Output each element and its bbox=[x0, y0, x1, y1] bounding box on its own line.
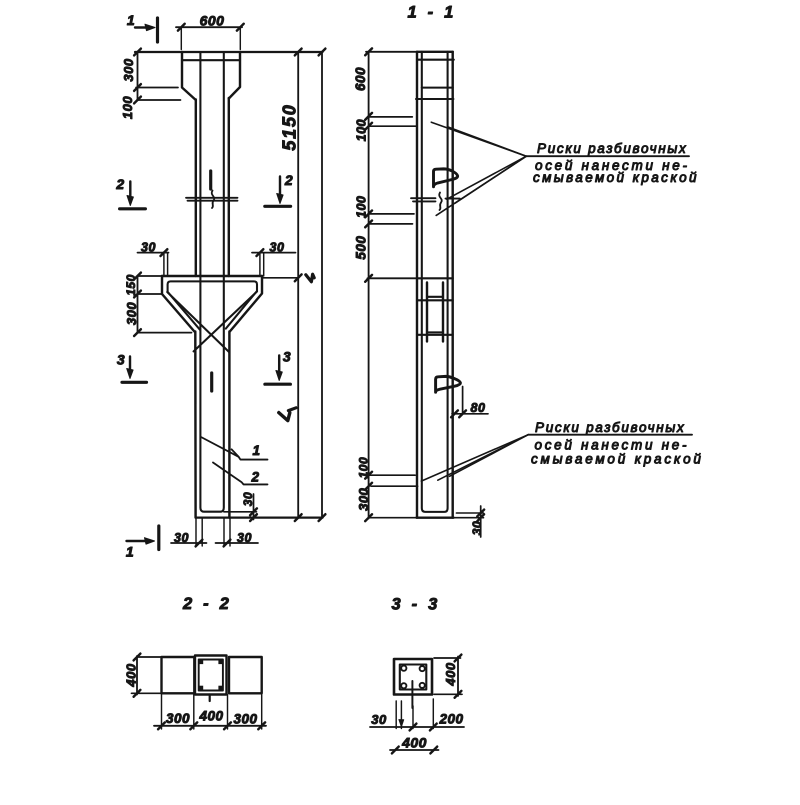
svg-text:1: 1 bbox=[252, 443, 260, 458]
svg-text:30: 30 bbox=[270, 241, 285, 255]
svg-text:400: 400 bbox=[124, 663, 139, 687]
svg-text:5150: 5150 bbox=[280, 103, 300, 150]
svg-text:2 - 2: 2 - 2 bbox=[182, 595, 232, 613]
svg-text:3: 3 bbox=[283, 349, 291, 365]
svg-text:30: 30 bbox=[470, 521, 484, 535]
svg-text:300: 300 bbox=[166, 711, 190, 726]
svg-text:300: 300 bbox=[121, 58, 136, 81]
svg-text:2: 2 bbox=[250, 470, 259, 485]
svg-text:Риски разбивочных: Риски разбивочных bbox=[535, 420, 686, 435]
svg-text:30: 30 bbox=[141, 241, 156, 255]
svg-text:3: 3 bbox=[117, 352, 125, 368]
svg-text:150: 150 bbox=[124, 274, 138, 296]
svg-text:200: 200 bbox=[438, 712, 463, 727]
svg-text:30: 30 bbox=[174, 531, 189, 545]
svg-text:100: 100 bbox=[355, 119, 369, 141]
svg-text:3 - 3: 3 - 3 bbox=[391, 596, 440, 614]
svg-text:30: 30 bbox=[241, 492, 255, 506]
svg-text:осей нанести не-: осей нанести не- bbox=[535, 438, 690, 453]
svg-text:1: 1 bbox=[126, 544, 134, 560]
svg-text:2: 2 bbox=[115, 176, 124, 192]
svg-text:300: 300 bbox=[124, 302, 139, 325]
svg-text:400: 400 bbox=[401, 735, 427, 751]
svg-text:30: 30 bbox=[371, 712, 387, 727]
svg-text:смываемой краской: смываемой краской bbox=[531, 452, 704, 467]
svg-text:30: 30 bbox=[237, 531, 252, 545]
svg-text:1: 1 bbox=[127, 12, 135, 28]
svg-text:2: 2 bbox=[284, 172, 293, 188]
svg-text:100: 100 bbox=[356, 457, 370, 479]
svg-text:смываемой краской: смываемой краской bbox=[533, 170, 699, 185]
svg-text:300: 300 bbox=[233, 712, 257, 727]
svg-text:500: 500 bbox=[353, 236, 368, 260]
svg-text:80: 80 bbox=[471, 401, 486, 415]
svg-text:400: 400 bbox=[198, 709, 223, 724]
svg-text:100: 100 bbox=[120, 96, 135, 119]
svg-text:300: 300 bbox=[356, 487, 371, 510]
svg-text:1 - 1: 1 - 1 bbox=[407, 4, 456, 22]
svg-text:600: 600 bbox=[200, 13, 225, 29]
svg-text:Риски разбивочных: Риски разбивочных bbox=[537, 141, 688, 156]
svg-text:400: 400 bbox=[443, 662, 458, 686]
svg-text:100: 100 bbox=[355, 196, 369, 218]
svg-text:600: 600 bbox=[353, 67, 368, 91]
